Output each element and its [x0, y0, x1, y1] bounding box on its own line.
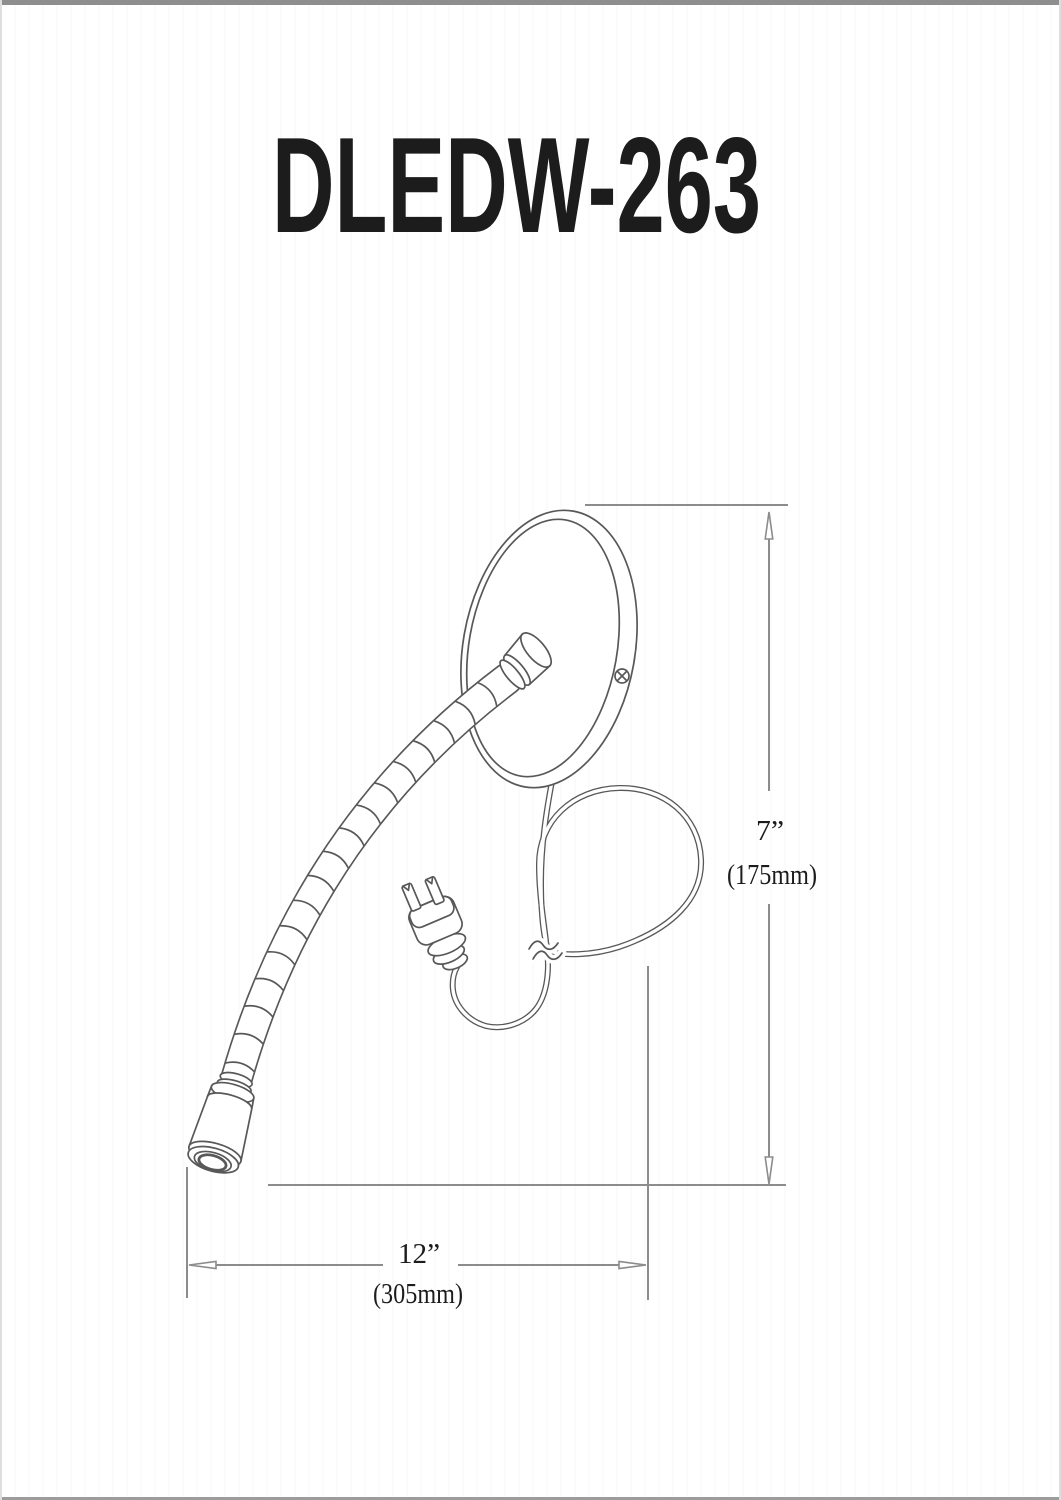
technical-drawing: DLEDW-263	[0, 0, 1061, 1500]
spec-sheet-page: DLEDW-263	[0, 0, 1061, 1500]
width-dimension	[187, 966, 786, 1300]
height-label-metric: (175mm)	[727, 859, 817, 891]
power-cord	[453, 776, 701, 1027]
width-label-inches: 12”	[398, 1238, 440, 1270]
height-label-inches: 7”	[756, 815, 784, 847]
arrow-left-icon	[189, 1261, 216, 1268]
page-title: DLEDW-263	[272, 109, 761, 261]
lamp-head	[184, 1067, 264, 1178]
canopy	[440, 496, 658, 802]
wall-lamp-line-drawing	[184, 496, 701, 1178]
width-label-metric: (305mm)	[373, 1278, 463, 1310]
cord-break-symbol	[529, 941, 562, 959]
arrow-down-icon	[765, 1157, 773, 1184]
two-prong-plug	[396, 870, 478, 978]
arrow-up-icon	[765, 512, 773, 539]
arrow-right-icon	[619, 1261, 646, 1268]
